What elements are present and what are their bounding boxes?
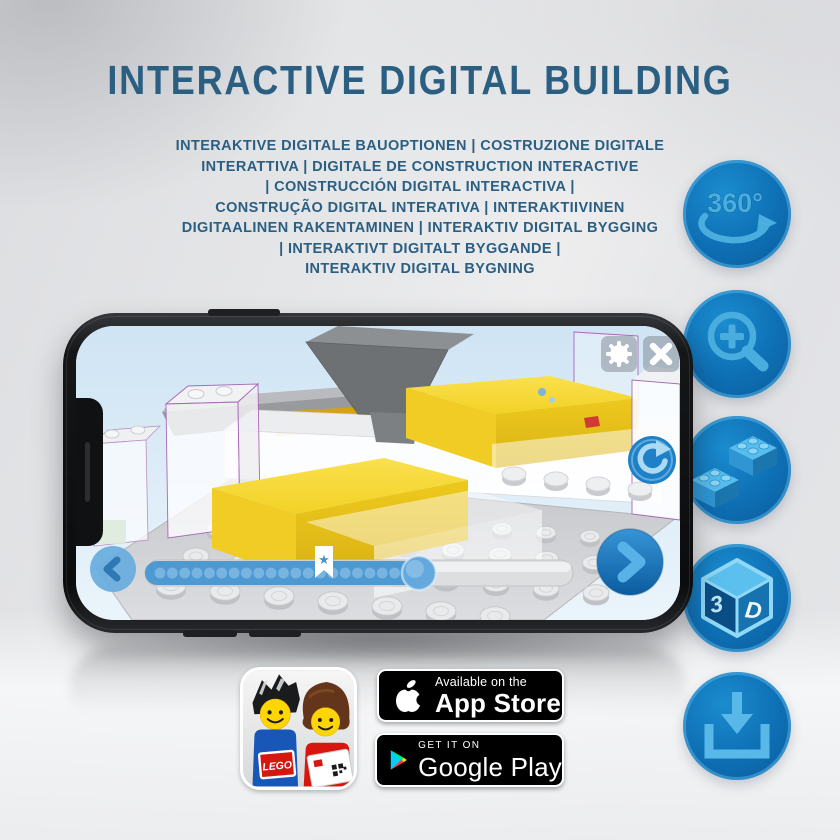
lego-app-icon[interactable]: LEGO [240, 667, 357, 790]
apple-icon [392, 676, 424, 716]
phone-side-button [208, 309, 280, 316]
rotate-model-button[interactable] [628, 436, 676, 484]
lego-app-artwork: LEGO [243, 670, 354, 787]
subtitle-line: INTERATTIVA | DIGITALE DE CONSTRUCTION I… [70, 157, 770, 178]
phone-screen: ★ [76, 326, 680, 620]
subtitle-line: INTERAKTIVE DIGITALE BAUOPTIONEN | COSTR… [70, 136, 770, 157]
cube-3d-icon: 3 D [683, 544, 791, 652]
page-title: INTERACTIVE DIGITAL BUILDING [50, 57, 789, 104]
subtitle-line: DIGITAALINEN RAKENTAMINEN | INTERAKTIV D… [70, 218, 770, 239]
phone-volume-button [183, 630, 237, 637]
zoom-in-icon [683, 290, 791, 398]
subtitle-line: | INTERAKTIVT DIGITALT BYGGANDE | [70, 239, 770, 260]
download-icon [683, 672, 791, 780]
app-store-tagline: Available on the [435, 675, 561, 689]
star-icon: ★ [318, 552, 330, 567]
close-button[interactable] [643, 336, 679, 372]
next-step-button[interactable] [597, 529, 663, 595]
subtitle-line: CONSTRUÇÃO DIGITAL INTERATIVA | INTERAKT… [70, 198, 770, 219]
step-dots [155, 568, 413, 579]
feature-rail: 360° [683, 0, 791, 840]
subtitle-line: | CONSTRUCCIÓN DIGITAL INTERACTIVA | [70, 177, 770, 198]
feature-bricks [683, 416, 791, 524]
subtitle: INTERAKTIVE DIGITALE BAUOPTIONEN | COSTR… [70, 136, 770, 280]
earpiece-slit [85, 442, 90, 502]
google-play-tagline: GET IT ON [418, 739, 562, 753]
lego-bricks-icon [683, 416, 791, 524]
builder-ui-overlay: ★ [76, 326, 680, 620]
google-play-badge[interactable]: GET IT ON Google Play [375, 733, 564, 787]
phone-notch [76, 398, 103, 546]
app-store-badge[interactable]: Available on the App Store [377, 669, 564, 722]
feature-3d: 3 D [683, 544, 791, 652]
boy-face [260, 699, 290, 729]
instruction-card [307, 749, 354, 787]
settings-button[interactable] [601, 336, 637, 372]
build-progress-slider[interactable]: ★ [145, 546, 573, 590]
feature-download [683, 672, 791, 780]
gear-icon [606, 341, 632, 367]
subtitle-line: INTERAKTIV DIGITAL BYGNING [70, 259, 770, 280]
app-store-name: App Store [435, 689, 561, 717]
google-play-icon [390, 740, 407, 780]
phone-volume-button [249, 630, 301, 637]
previous-step-button[interactable] [90, 546, 136, 592]
google-play-name: Google Play [418, 753, 562, 781]
girl-face [311, 708, 339, 736]
feature-zoom [683, 290, 791, 398]
label-d: D [744, 596, 763, 624]
phone-frame: ★ [63, 313, 693, 633]
